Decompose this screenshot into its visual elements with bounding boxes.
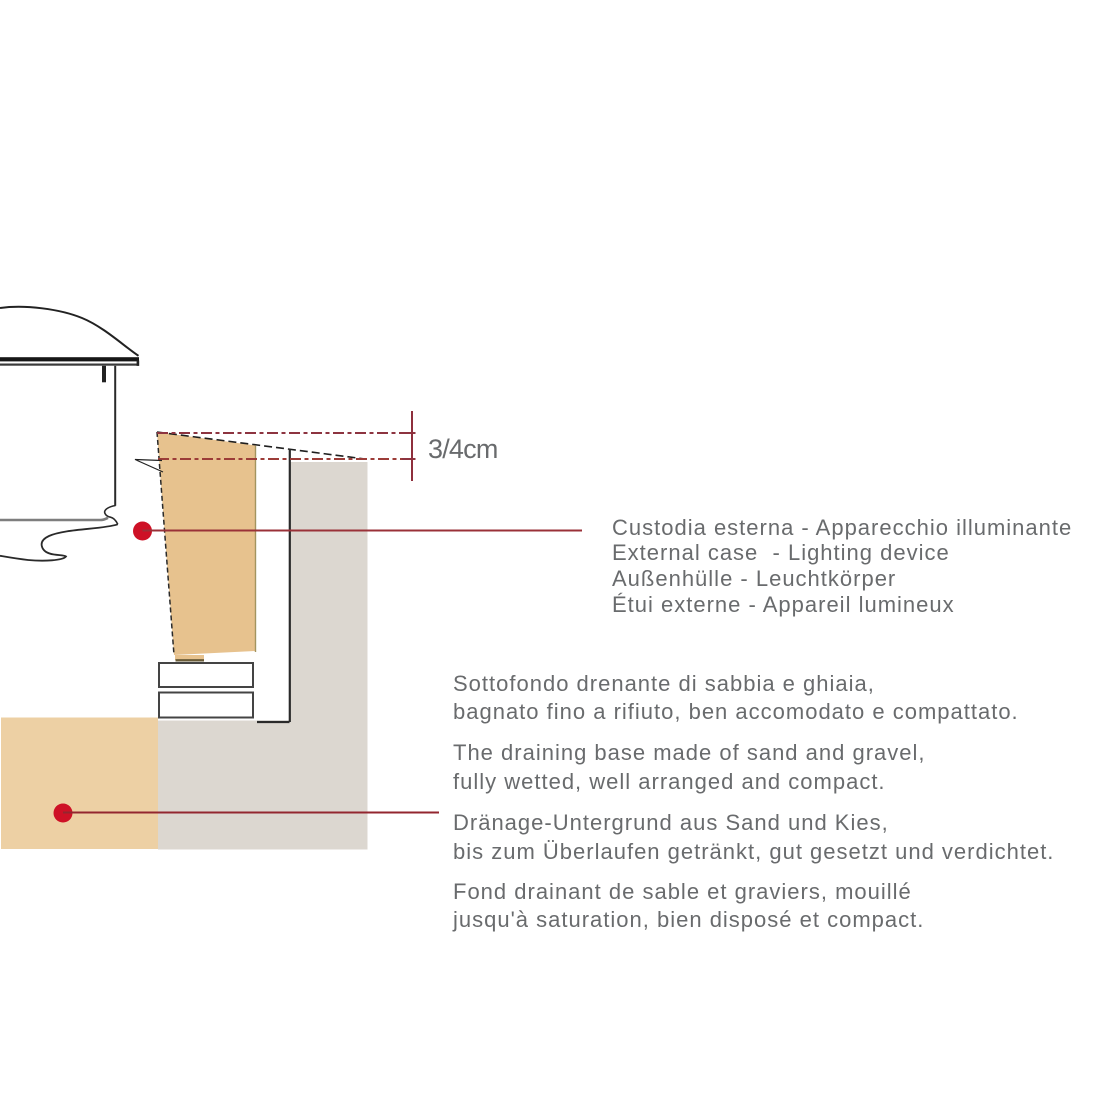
svg-text:3/4cm: 3/4cm (428, 434, 498, 464)
